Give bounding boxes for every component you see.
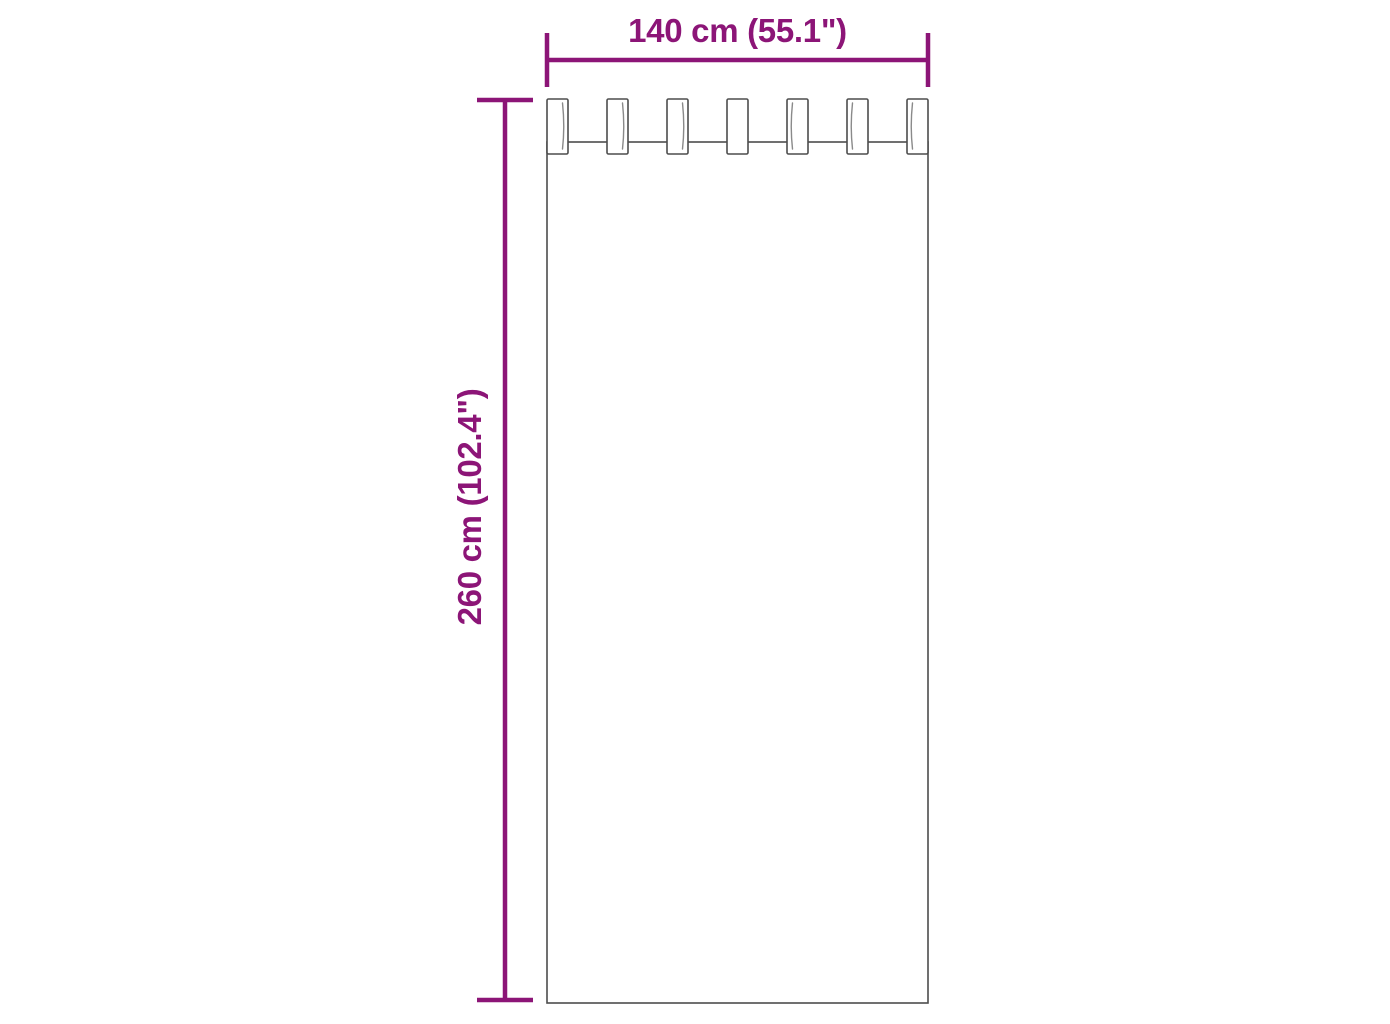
curtain-tab: [667, 99, 688, 154]
curtain-tab: [607, 99, 628, 154]
curtain-panel: [547, 142, 928, 1003]
curtain-tab: [547, 99, 568, 154]
curtain-tab: [847, 99, 868, 154]
curtain-tab: [787, 99, 808, 154]
width-dimension-label: 140 cm (55.1"): [547, 12, 928, 50]
curtain-dimension-diagram: [0, 0, 1390, 1024]
curtain-tab: [727, 99, 748, 154]
diagram-canvas: 140 cm (55.1") 260 cm (102.4"): [0, 0, 1390, 1024]
curtain-tab: [907, 99, 928, 154]
height-dimension-label: 260 cm (102.4"): [451, 357, 491, 657]
